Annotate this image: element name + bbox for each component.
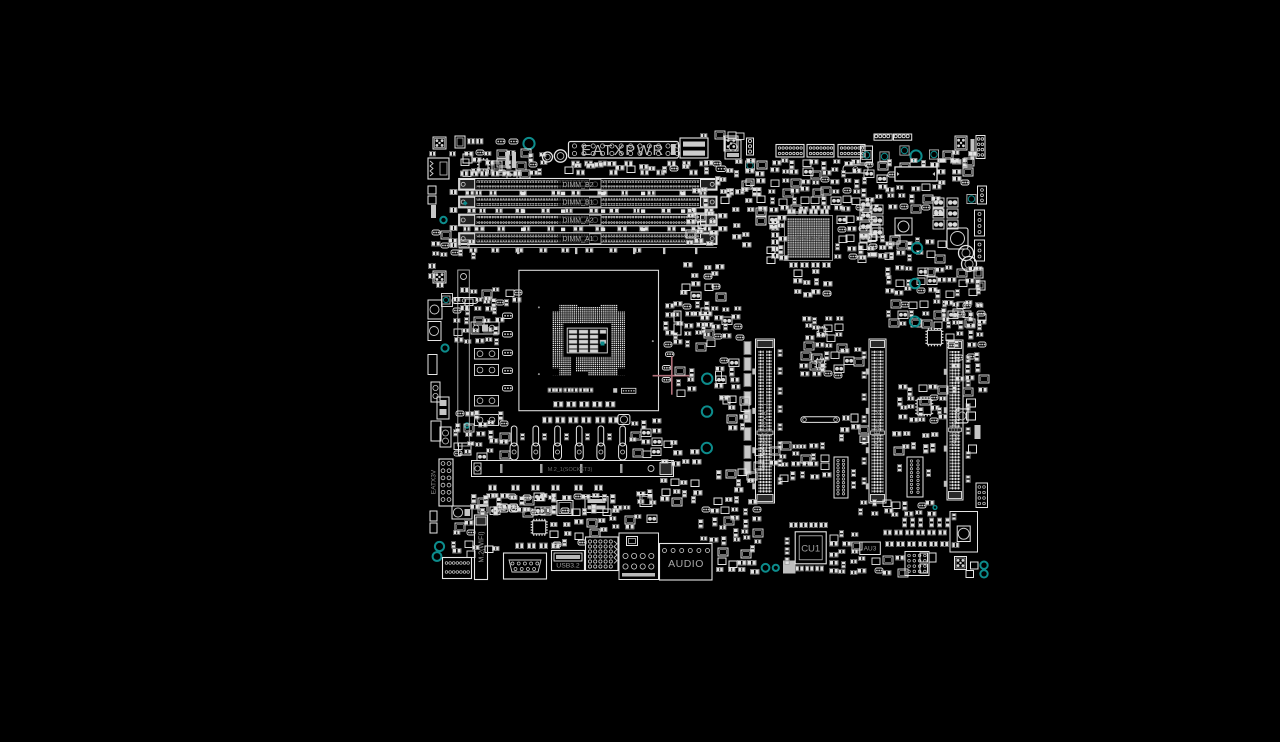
svg-text:DIMM_A2: DIMM_A2 [562,218,593,225]
svg-text:M.2(WIFI): M.2(WIFI) [479,531,486,562]
svg-text:DIMM_A1: DIMM_A1 [562,236,593,243]
svg-text:PCIEX16/X8_1: PCIEX16/X8_1 [761,402,770,456]
svg-text:INTEL PCH: INTEL PCH [794,237,823,243]
svg-text:USB3.2: USB3.2 [556,563,580,570]
svg-text:EATXPWR: EATXPWR [581,142,665,159]
svg-text:DIMM_B1: DIMM_B1 [562,200,593,207]
svg-text:2: 2 [605,218,608,224]
svg-text:AU3: AU3 [864,546,877,553]
svg-text:AUDIO: AUDIO [668,558,704,570]
svg-text:M.2_1(SOCKET3): M.2_1(SOCKET3) [548,467,593,473]
svg-text:CU1: CU1 [801,544,820,555]
svg-text:EATX3V: EATX3V [431,469,438,494]
svg-text:2: 2 [605,183,608,189]
svg-text:1: 1 [605,237,608,243]
svg-text:PCIEX8_2: PCIEX8_2 [873,410,882,448]
svg-text:DIMM_B2: DIMM_B2 [562,182,593,189]
svg-text:1: 1 [605,200,608,206]
